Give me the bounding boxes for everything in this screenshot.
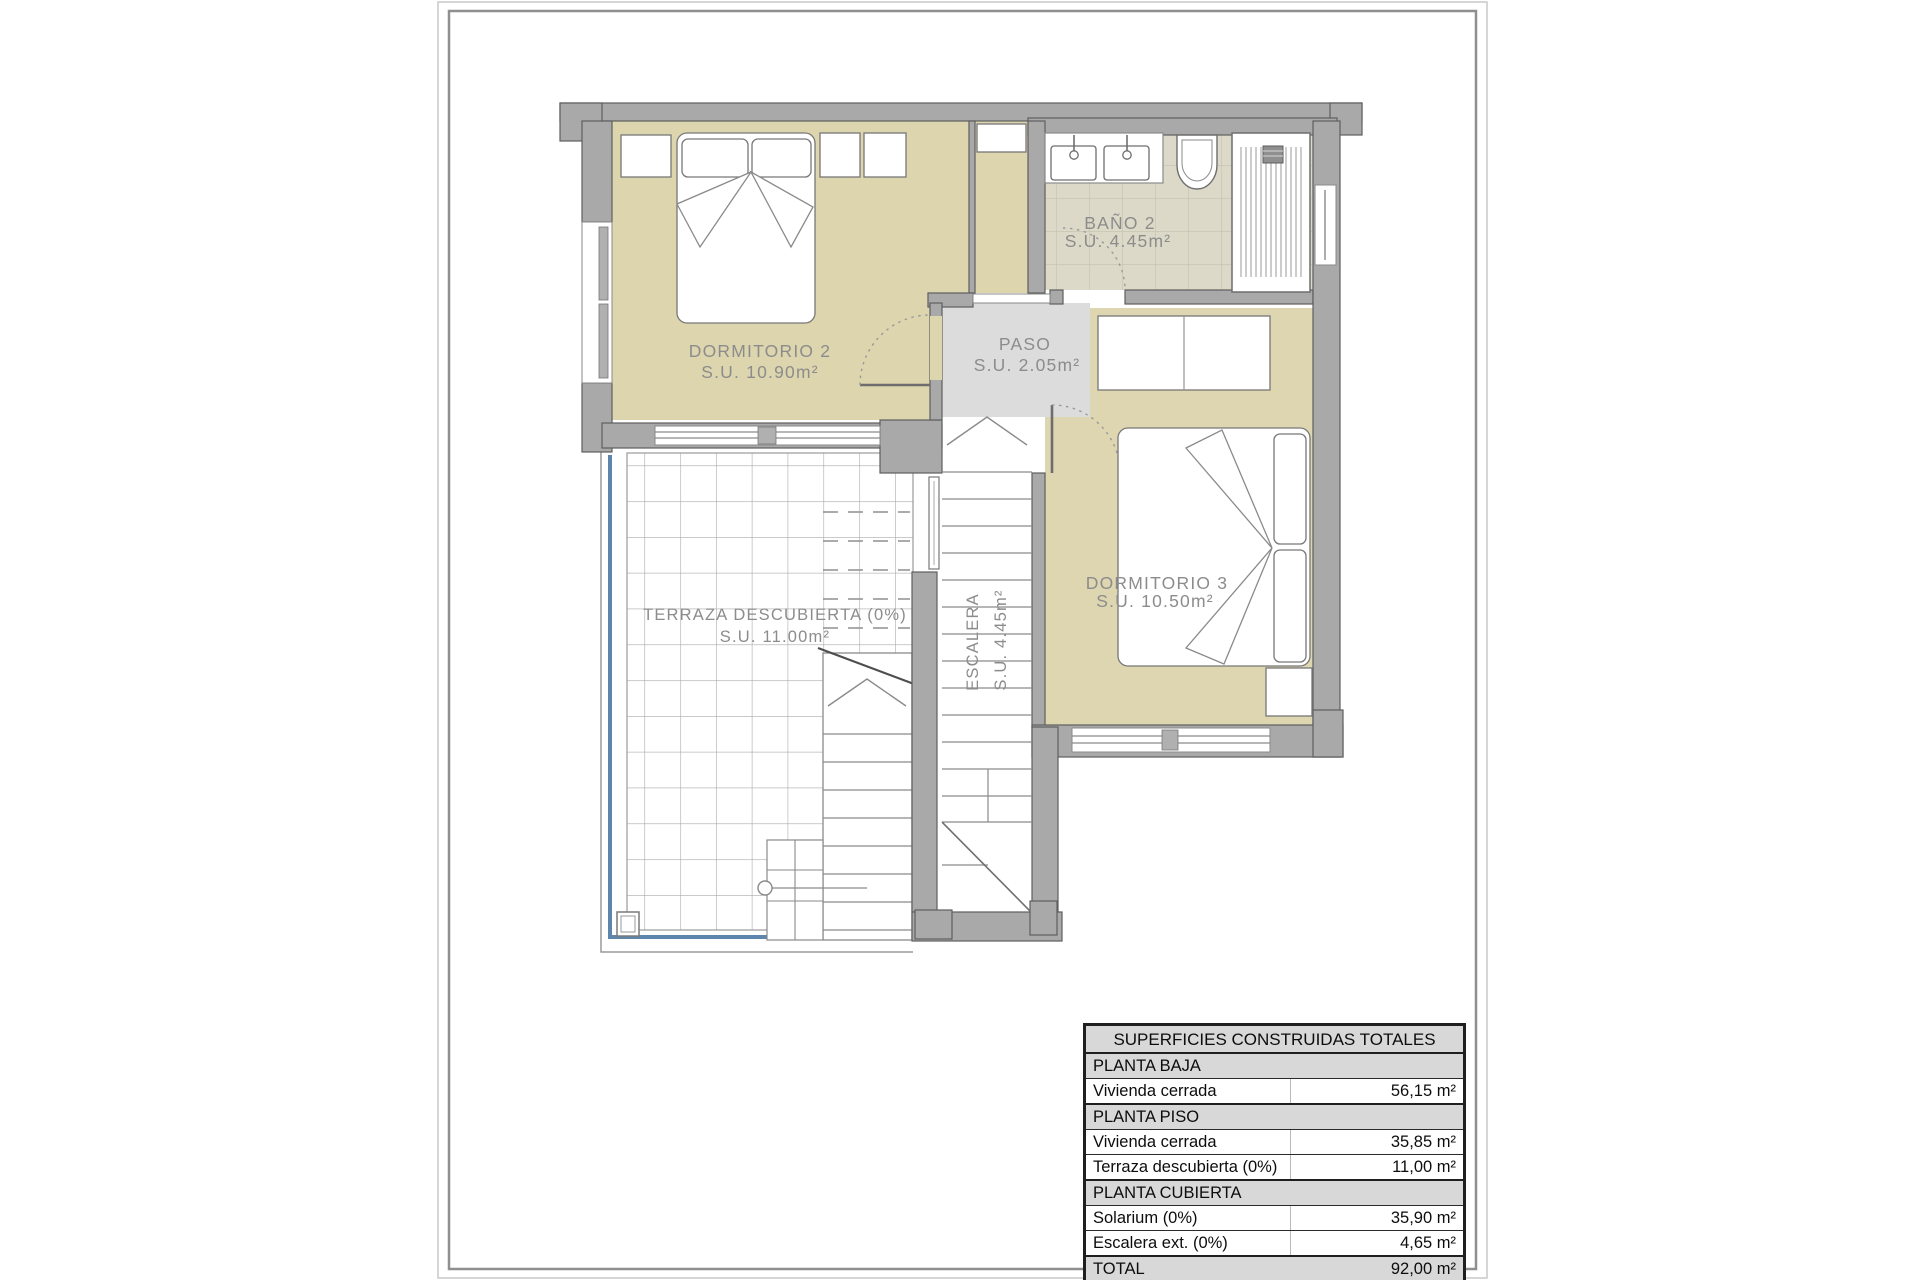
table-row-value: 92,00 m² <box>1291 1257 1463 1280</box>
table-row-value: 35,85 m² <box>1290 1130 1463 1154</box>
toilet <box>1177 135 1217 189</box>
bano2-area: S.U. 4.45m² <box>1065 231 1172 251</box>
escalera-area: S.U. 4.45m² <box>992 589 1010 690</box>
table-row-label: Escalera ext. (0%) <box>1086 1235 1290 1252</box>
nightstand <box>1266 668 1312 716</box>
dormitorio2-label: DORMITORIO 2 <box>689 341 831 361</box>
page: DORMITORIO 2 S.U. 10.90m² BAÑO 2 S.U. 4.… <box>0 0 1920 1280</box>
bathroom-threshold <box>973 294 1050 303</box>
table-row-label: Vivienda cerrada <box>1086 1083 1290 1100</box>
table-row-label: PLANTA BAJA <box>1086 1058 1463 1075</box>
shower-drain <box>1263 146 1283 163</box>
nightstand <box>820 133 860 177</box>
pillow <box>752 139 811 177</box>
table-row: Escalera ext. (0%)4,65 m² <box>1086 1230 1463 1255</box>
dormitorio2-area: S.U. 10.90m² <box>701 362 819 382</box>
floor-plan: DORMITORIO 2 S.U. 10.90m² BAÑO 2 S.U. 4.… <box>0 0 1920 1280</box>
paso-area: S.U. 2.05m² <box>974 355 1081 375</box>
pillow <box>1274 550 1306 662</box>
terraza-label: TERRAZA DESCUBIERTA (0%) <box>643 606 907 624</box>
table-row: PLANTA BAJA <box>1086 1052 1463 1078</box>
table-row-label: PLANTA CUBIERTA <box>1086 1185 1463 1202</box>
pillow <box>1274 434 1306 544</box>
stairwell-floor <box>942 417 1032 912</box>
table-row-value: 4,65 m² <box>1290 1231 1463 1255</box>
closet-shelf <box>977 124 1026 152</box>
terraza-area: S.U. 11.00m² <box>720 628 830 646</box>
areas-table: SUPERFICIES CONSTRUIDAS TOTALES PLANTA B… <box>1083 1023 1466 1280</box>
table-row-label: PLANTA PISO <box>1086 1109 1463 1126</box>
bathroom-window <box>1315 185 1336 265</box>
table-row-label: Terraza descubierta (0%) <box>1086 1159 1290 1176</box>
table-row: TOTAL92,00 m² <box>1086 1255 1463 1280</box>
areas-table-title-text: SUPERFICIES CONSTRUIDAS TOTALES <box>1113 1031 1435 1048</box>
table-row: PLANTA PISO <box>1086 1103 1463 1129</box>
table-row-value: 11,00 m² <box>1290 1155 1463 1179</box>
dormitorio3-window <box>1072 728 1270 752</box>
closet-box <box>864 133 906 177</box>
terrace-drain <box>617 912 639 936</box>
areas-table-title: SUPERFICIES CONSTRUIDAS TOTALES <box>1086 1026 1463 1052</box>
paso-label: PASO <box>999 334 1051 354</box>
table-row-value: 35,90 m² <box>1290 1206 1463 1230</box>
dormitorio2-window <box>655 426 880 445</box>
areas-table-body: PLANTA BAJAVivienda cerrada56,15 m²PLANT… <box>1086 1052 1463 1280</box>
table-row: Vivienda cerrada35,85 m² <box>1086 1129 1463 1154</box>
table-row-label: Solarium (0%) <box>1086 1210 1290 1227</box>
left-wall-window <box>582 222 612 383</box>
bano2-label: BAÑO 2 <box>1084 212 1155 233</box>
nightstand <box>621 135 671 177</box>
table-row-label: TOTAL <box>1086 1261 1291 1278</box>
dormitorio3-label: DORMITORIO 3 <box>1086 573 1228 593</box>
table-row: Vivienda cerrada56,15 m² <box>1086 1078 1463 1103</box>
table-row-label: Vivienda cerrada <box>1086 1134 1290 1151</box>
pillow <box>682 139 748 177</box>
table-row: Terraza descubierta (0%)11,00 m² <box>1086 1154 1463 1179</box>
table-row: PLANTA CUBIERTA <box>1086 1179 1463 1205</box>
dormitorio3-area: S.U. 10.50m² <box>1096 591 1214 611</box>
escalera-label: ESCALERA <box>964 593 982 691</box>
terrace <box>601 447 914 952</box>
table-row-value: 56,15 m² <box>1290 1079 1463 1103</box>
stair-railing <box>929 477 939 569</box>
shower <box>1232 133 1310 292</box>
table-row: Solarium (0%)35,90 m² <box>1086 1205 1463 1230</box>
